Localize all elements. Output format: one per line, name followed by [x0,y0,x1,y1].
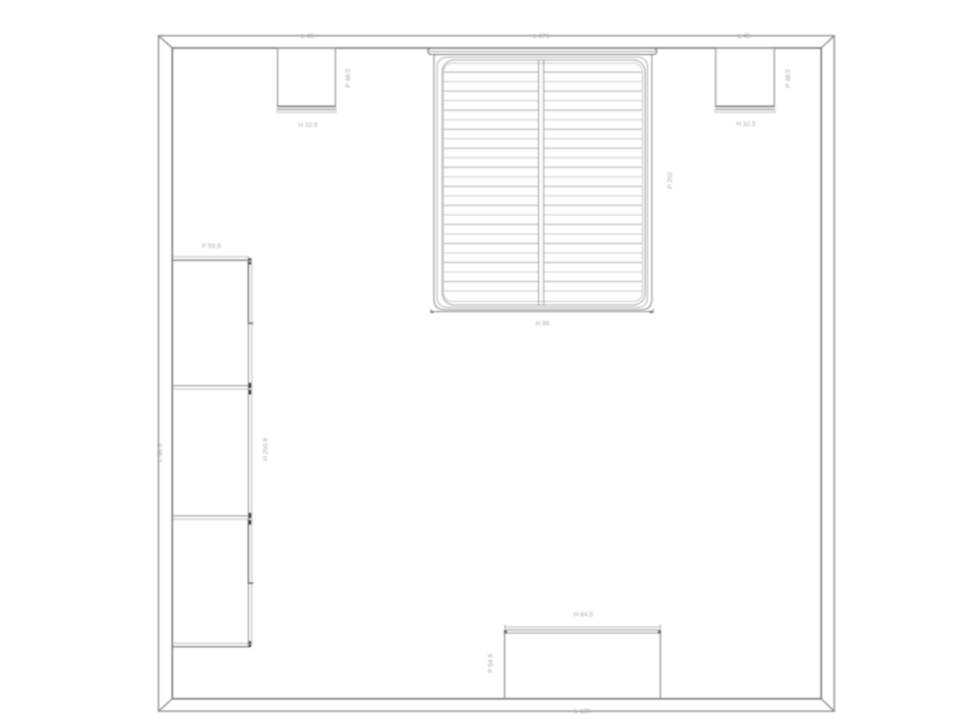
svg-text:L 45: L 45 [301,33,314,40]
svg-text:H 250.8: H 250.8 [263,438,270,461]
svg-text:L 176: L 176 [533,33,550,40]
svg-text:L 98.5: L 98.5 [157,443,164,461]
svg-text:H 95: H 95 [536,321,550,328]
svg-text:H 84.5: H 84.5 [574,611,594,618]
svg-text:P 48.5: P 48.5 [345,68,352,87]
svg-text:P 59.5: P 59.5 [202,243,221,250]
svg-text:P 202: P 202 [667,171,674,188]
svg-text:H 32.5: H 32.5 [298,122,318,129]
svg-text:P 48.5: P 48.5 [785,69,792,88]
svg-text:L 45: L 45 [738,33,751,40]
svg-text:H 32.5: H 32.5 [736,121,756,128]
svg-text:L 120: L 120 [574,708,591,715]
svg-text:P 54.8: P 54.8 [488,654,495,673]
